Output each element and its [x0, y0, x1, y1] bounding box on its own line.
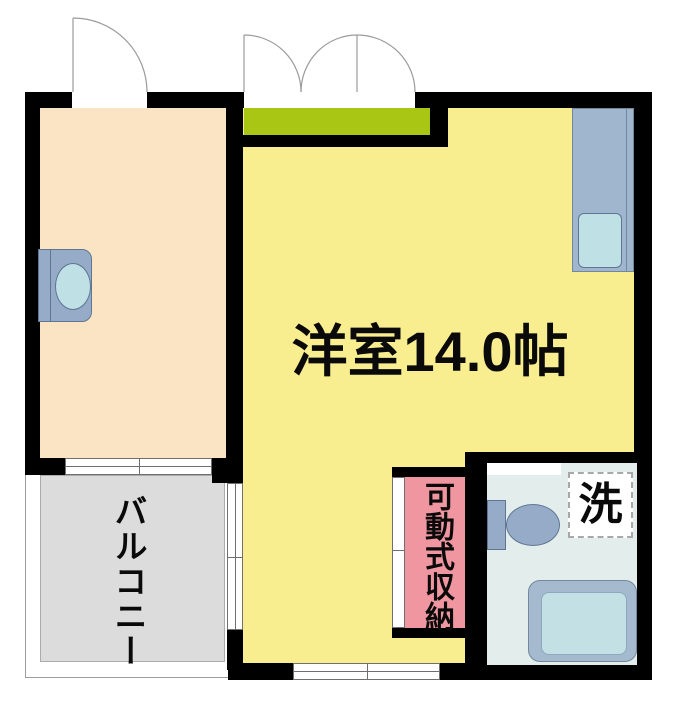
double-door-arc-right	[357, 35, 415, 92]
single-door-arc	[73, 18, 147, 92]
double-door-arc-left	[244, 35, 301, 92]
floor-plan: 洗 洋室14.0帖 バルコニー 可動式収納	[0, 0, 678, 705]
door-swing-arcs	[0, 0, 678, 705]
double-door-arc-mid	[301, 35, 357, 92]
